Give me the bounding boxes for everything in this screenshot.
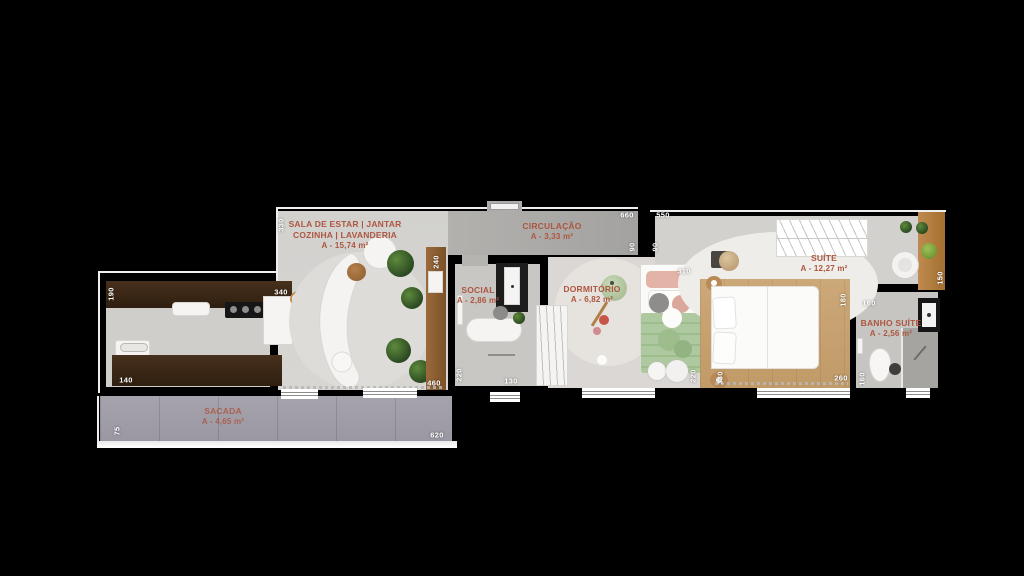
dimension-label: 550 [656, 211, 669, 220]
fluffy-pouf [648, 362, 666, 380]
towel [857, 338, 863, 354]
dimension-label: 90 [651, 243, 660, 252]
room-name: SACADA [202, 406, 244, 417]
room-name: BANHO SUÍTE [861, 318, 922, 329]
wall-outline [97, 396, 99, 446]
door-opening [906, 388, 930, 398]
dimension-label: 340 [274, 288, 287, 297]
dimension-label: 260 [834, 374, 847, 383]
dimension-label: 140 [119, 376, 132, 385]
dimension-label: 220 [689, 369, 698, 382]
pillow [712, 331, 737, 364]
room-area: A - 2,56 m² [861, 329, 922, 340]
room-label-banho-suite: BANHO SUÍTE A - 2,56 m² [861, 318, 922, 340]
wall-outline [650, 210, 946, 212]
dimension-label: 180 [839, 293, 848, 306]
dimension-label: 240 [432, 255, 441, 268]
room-name: SUÍTE [800, 253, 847, 264]
dimension-label: 90 [628, 243, 637, 252]
plant-icon [900, 221, 912, 233]
dimension-label: 160 [862, 299, 875, 308]
shower [496, 263, 528, 312]
cooktop [225, 302, 267, 318]
curtain [715, 382, 848, 385]
pillow [662, 308, 682, 328]
room-area: A - 12,27 m² [800, 264, 847, 275]
plant-icon [916, 222, 928, 234]
dimension-label: 660 [620, 211, 633, 220]
dimension-label: 190 [107, 287, 116, 300]
window [281, 389, 318, 399]
stool [889, 363, 901, 375]
fluffy-pouf [666, 360, 688, 382]
plant-icon [401, 287, 423, 309]
plant-icon [921, 243, 937, 259]
dimension-label: 620 [430, 431, 443, 440]
wardrobe [776, 219, 868, 257]
towel-bar [488, 354, 515, 356]
dimension-label: 130 [504, 377, 517, 386]
room-area: A - 2,86 m² [457, 296, 499, 307]
kitchen-counter-lower [112, 355, 282, 386]
room-name: COZINHA | LAVANDERIA [289, 230, 402, 241]
room-label-dormitorio: DORMITÓRIO A - 6,82 m² [563, 284, 620, 306]
room-label-social: SOCIAL A - 2,86 m² [457, 285, 499, 307]
toy [599, 315, 609, 325]
room-area: A - 6,82 m² [563, 295, 620, 306]
plant-icon [387, 250, 414, 277]
wall-outline [278, 207, 638, 209]
vessel-sink [493, 306, 508, 320]
side-table [347, 263, 366, 281]
entrance-door [490, 203, 519, 210]
room-label-sacada: SACADA A - 4,65 m² [202, 406, 244, 428]
floor-plan: SALA DE ESTAR | JANTAR COZINHA | LAVANDE… [0, 0, 1024, 576]
dimension-label: 310 [677, 267, 690, 276]
room-label-suite: SUÍTE A - 12,27 m² [800, 253, 847, 275]
pillow [712, 296, 737, 329]
dimension-label: 75 [113, 427, 122, 436]
desk-chair [891, 251, 919, 279]
room-area: A - 4,65 m² [202, 417, 244, 428]
wall-outline [100, 271, 278, 273]
shelf-decor [428, 271, 443, 293]
pouf [674, 340, 692, 358]
wardrobe [536, 305, 568, 386]
sofa [306, 251, 386, 391]
dimension-label: 330 [716, 371, 725, 384]
room-area: A - 15,74 m² [289, 241, 402, 252]
room-label-circulacao: CIRCULAÇÃO A - 3,33 m² [522, 221, 581, 243]
window [757, 388, 850, 398]
dimension-label: 160 [858, 372, 867, 385]
room-label-sala: SALA DE ESTAR | JANTAR COZINHA | LAVANDE… [289, 219, 402, 252]
balcony-parapet [97, 441, 457, 448]
plant-icon [386, 338, 411, 363]
social-door-opening [462, 255, 488, 266]
window [582, 388, 655, 398]
pampas-plant [719, 251, 739, 271]
room-name: SALA DE ESTAR | JANTAR [289, 219, 402, 230]
dimension-label: 150 [936, 271, 945, 284]
balcony-floor [100, 396, 452, 442]
room-name: DORMITÓRIO [563, 284, 620, 295]
dimension-label: 220 [455, 368, 464, 381]
window [490, 392, 520, 402]
toy [593, 327, 601, 335]
dimension-label: 330 [277, 218, 286, 231]
room-name: CIRCULAÇÃO [522, 221, 581, 232]
wall-outline [98, 271, 100, 393]
dimension-label: 460 [427, 379, 440, 388]
sliding-door [363, 388, 417, 398]
room-name: SOCIAL [457, 285, 499, 296]
toy [597, 355, 607, 365]
kitchen-sink [172, 302, 210, 316]
plant-icon [513, 312, 525, 324]
room-area: A - 3,33 m² [522, 232, 581, 243]
